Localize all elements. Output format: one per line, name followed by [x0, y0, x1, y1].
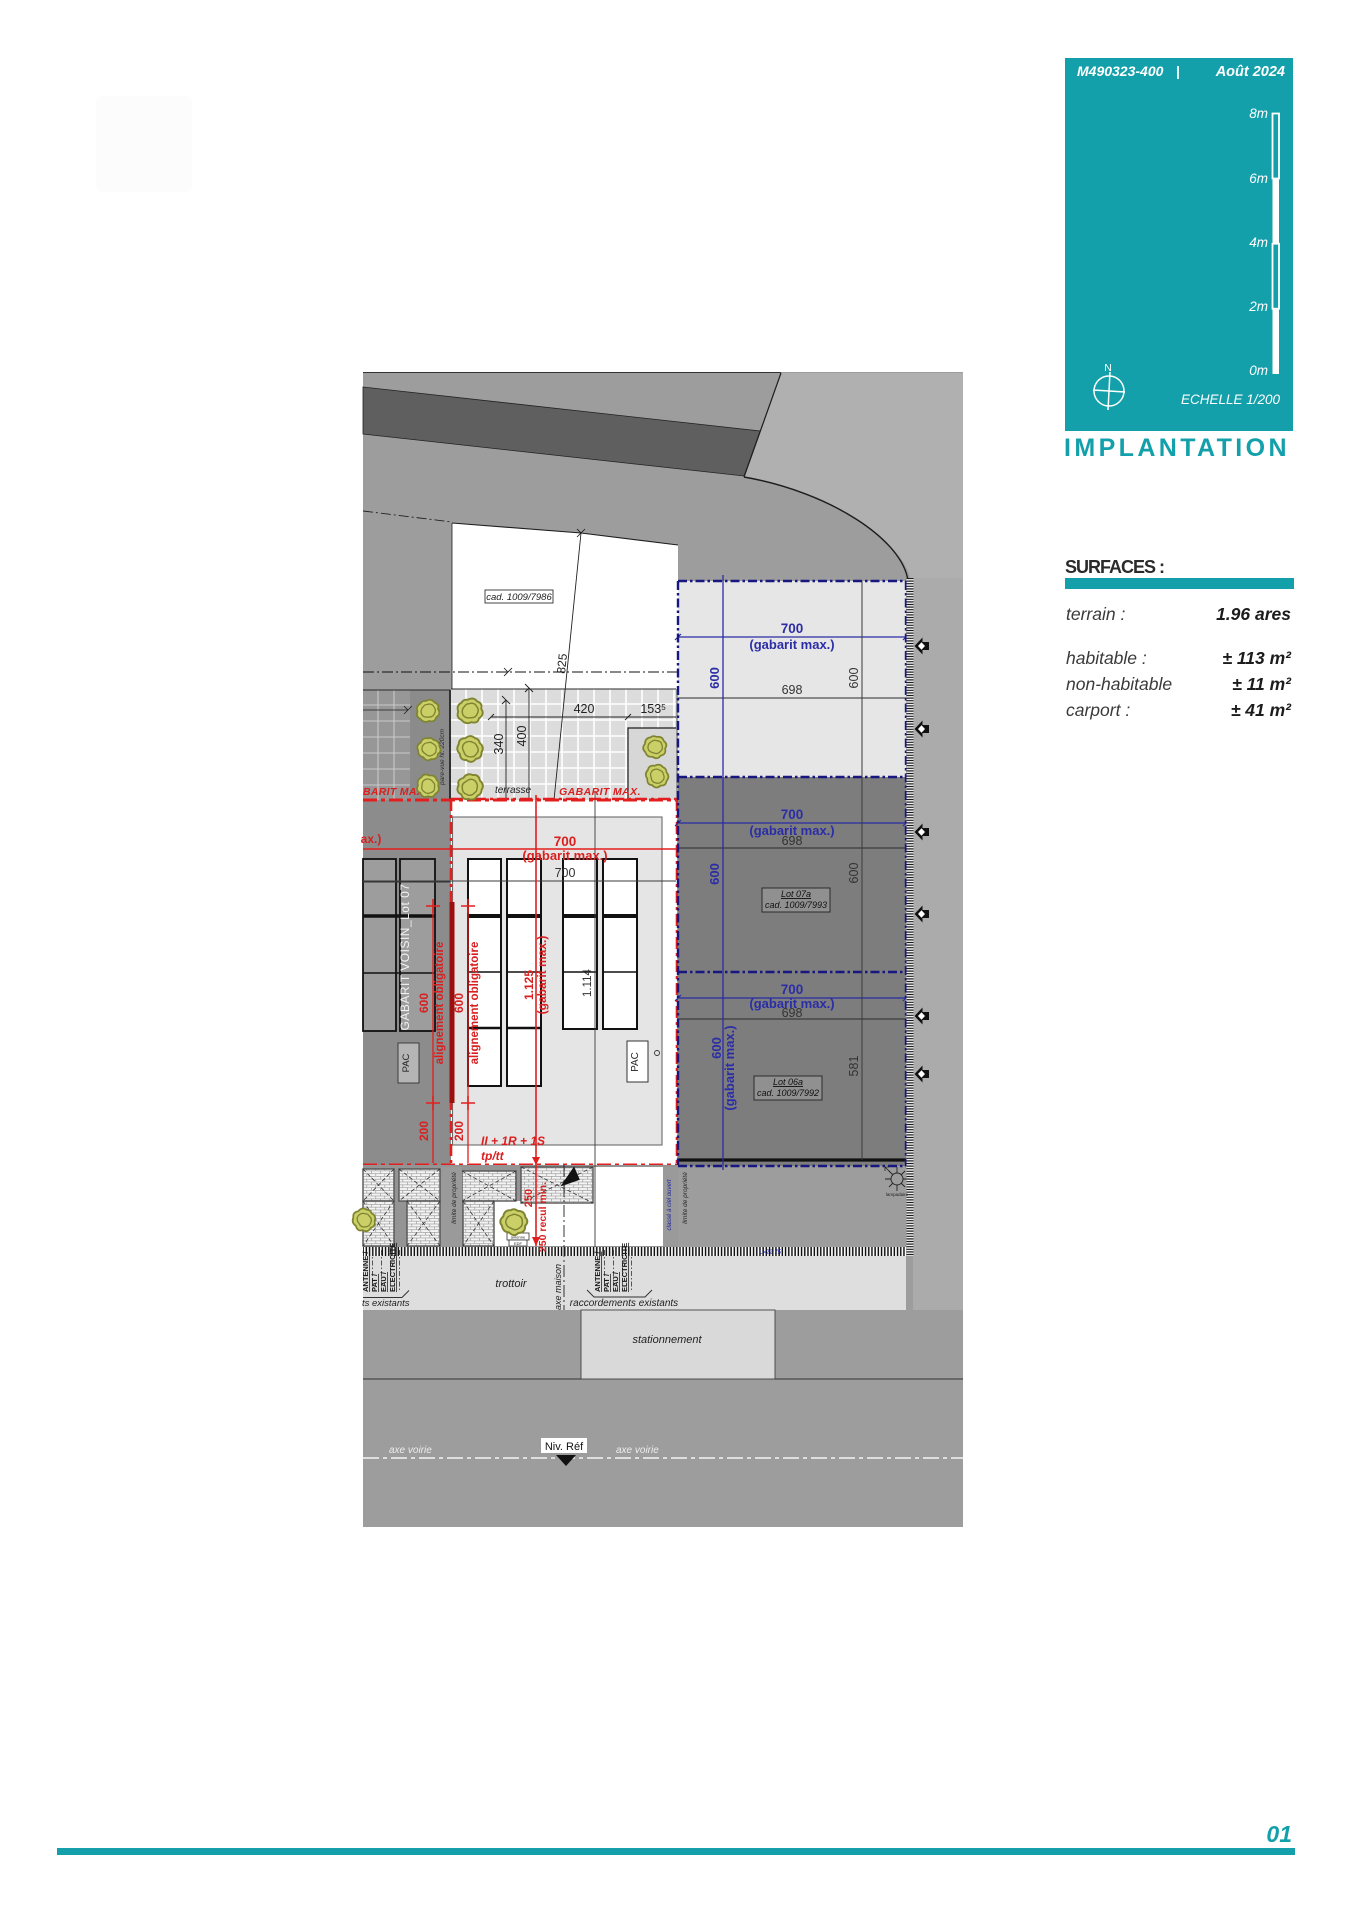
svg-text:axe voirie: axe voirie	[616, 1445, 659, 1456]
svg-text:ts existants: ts existants	[362, 1298, 410, 1309]
svg-text:PAT /: PAT /	[370, 1273, 379, 1292]
svg-text:II + 1R + 1S: II + 1R + 1S	[481, 1134, 545, 1148]
svg-text:Niv. Réf: Niv. Réf	[545, 1441, 584, 1453]
svg-text:700: 700	[781, 807, 804, 822]
svg-text:axe voirie: axe voirie	[389, 1445, 432, 1456]
svg-text:581: 581	[847, 1056, 861, 1077]
svg-text:trottoir: trottoir	[495, 1278, 528, 1290]
svg-text:± 41 m²: ± 41 m²	[1231, 700, 1292, 720]
svg-text:carport :: carport :	[1066, 700, 1130, 720]
svg-text:alignement obligatoire: alignement obligatoire	[434, 942, 446, 1065]
svg-text:limite de propriété: limite de propriété	[682, 1172, 689, 1224]
svg-text:Lot 06a: Lot 06a	[773, 1077, 803, 1087]
svg-text:700: 700	[781, 621, 804, 636]
svg-text:terrain :: terrain :	[1066, 604, 1125, 624]
svg-text:698: 698	[782, 1006, 803, 1020]
svg-text:ax.): ax.)	[361, 832, 382, 846]
svg-text:pare-vue ht. 220cm: pare-vue ht. 220cm	[439, 728, 446, 786]
svg-text:GABARIT VOISIN_Lot 07: GABARIT VOISIN_Lot 07	[398, 883, 412, 1030]
svg-text:ELECTRICITE: ELECTRICITE	[620, 1243, 629, 1292]
svg-text:L=22.75: L=22.75	[759, 1250, 782, 1256]
svg-text:stationnement: stationnement	[632, 1334, 702, 1346]
svg-text:8m: 8m	[1249, 106, 1268, 121]
svg-text:± 113 m²: ± 113 m²	[1222, 648, 1292, 668]
svg-text:ANTENNE /: ANTENNE /	[593, 1251, 602, 1292]
svg-text:2m: 2m	[1248, 299, 1268, 314]
svg-text:Lot 07a: Lot 07a	[781, 889, 811, 899]
svg-text:axe maison: axe maison	[553, 1264, 563, 1310]
svg-text:EDF: EDF	[514, 1241, 523, 1246]
svg-text:ECHELLE 1/200: ECHELLE 1/200	[1181, 392, 1281, 407]
svg-text:200: 200	[417, 1121, 431, 1141]
svg-text:1.125: 1.125	[522, 970, 536, 1000]
svg-text:alignement obligatoire: alignement obligatoire	[469, 942, 481, 1065]
svg-text:M490323-400: M490323-400	[1077, 63, 1164, 79]
svg-text:1.114: 1.114	[582, 968, 594, 997]
svg-text:(gabarit max.): (gabarit max.)	[535, 936, 549, 1015]
svg-text:lampadaire: lampadaire	[886, 1192, 909, 1197]
svg-text:(gabarit max.): (gabarit max.)	[522, 848, 607, 863]
svg-text:non-habitable: non-habitable	[1066, 674, 1172, 694]
svg-text:6m: 6m	[1249, 171, 1268, 186]
svg-text:400: 400	[515, 726, 529, 747]
svg-text:cad. 1009/7992: cad. 1009/7992	[757, 1088, 819, 1098]
svg-text:ANTENNE /: ANTENNE /	[361, 1251, 370, 1292]
svg-text:250: 250	[523, 1189, 535, 1207]
svg-text:terrasse: terrasse	[495, 785, 532, 796]
svg-text:PAC: PAC	[401, 1053, 412, 1072]
svg-text:600: 600	[707, 667, 722, 689]
svg-text:600: 600	[707, 863, 722, 885]
svg-text:SURFACES :: SURFACES :	[1065, 557, 1164, 577]
svg-text:PAC: PAC	[630, 1052, 641, 1072]
svg-text:raccordements existants: raccordements existants	[570, 1298, 678, 1309]
svg-text:200: 200	[452, 1121, 466, 1141]
svg-text:420: 420	[574, 702, 595, 716]
svg-text:cad. 1009/7986: cad. 1009/7986	[486, 592, 552, 603]
svg-text:340: 340	[492, 734, 506, 755]
svg-text:01: 01	[1266, 1821, 1292, 1847]
svg-text:700: 700	[554, 834, 577, 849]
svg-text:Août 2024: Août 2024	[1215, 64, 1285, 80]
svg-text:habitable :: habitable :	[1066, 648, 1147, 668]
svg-text:PAT /: PAT /	[602, 1273, 611, 1292]
svg-text:± 11 m²: ± 11 m²	[1232, 674, 1292, 694]
svg-text:GABARIT MAX.: GABARIT MAX.	[559, 786, 641, 798]
svg-text:700: 700	[555, 866, 576, 880]
svg-text:cad. 1009/7993: cad. 1009/7993	[765, 900, 827, 910]
svg-text:N: N	[1104, 362, 1112, 374]
svg-text:250 recul min.: 250 recul min.	[537, 1182, 549, 1252]
svg-text:limite de propriété: limite de propriété	[451, 1172, 458, 1224]
svg-text:600: 600	[417, 993, 431, 1013]
svg-text:IMPLANTATION: IMPLANTATION	[1064, 434, 1290, 462]
svg-text:0m: 0m	[1249, 363, 1268, 378]
svg-text:(gabarit max.): (gabarit max.)	[749, 637, 834, 652]
svg-text:4m: 4m	[1249, 235, 1268, 250]
svg-text:1.96 ares: 1.96 ares	[1216, 604, 1291, 624]
svg-text:825: 825	[554, 653, 570, 675]
svg-text:EAU /: EAU /	[611, 1271, 620, 1292]
svg-text:EAU /: EAU /	[379, 1271, 388, 1292]
svg-text:|: |	[1176, 63, 1180, 79]
svg-text:698: 698	[782, 683, 803, 697]
svg-text:ELECTRICITE: ELECTRICITE	[388, 1243, 397, 1292]
svg-text:classé à ciel ouvert: classé à ciel ouvert	[667, 1179, 673, 1230]
svg-text:698: 698	[782, 834, 803, 848]
svg-text:600: 600	[452, 993, 466, 1013]
svg-text:600: 600	[847, 668, 861, 689]
svg-text:(gabarit max.): (gabarit max.)	[722, 1025, 737, 1110]
svg-text:600: 600	[847, 863, 861, 884]
svg-text:tp/tt: tp/tt	[481, 1149, 505, 1163]
svg-text:700: 700	[781, 982, 804, 997]
